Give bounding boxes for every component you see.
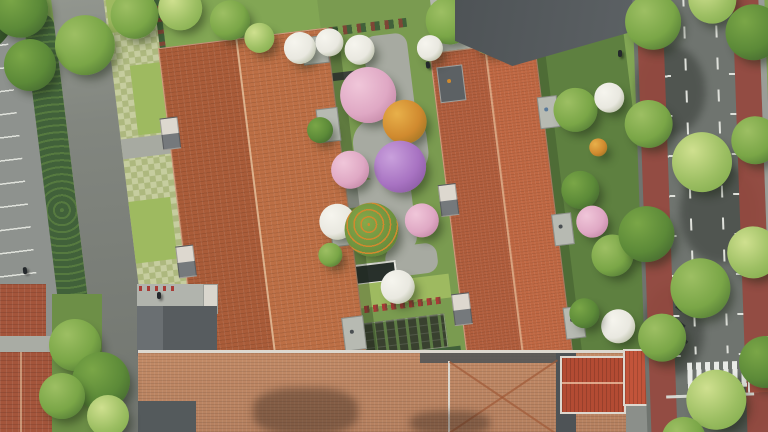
- terrace-furniture: [350, 330, 354, 334]
- terrace-furniture: [544, 107, 548, 111]
- west-balcony: [159, 116, 181, 150]
- tree-shadow-on-roof: [253, 388, 358, 432]
- green-tree: [87, 395, 129, 432]
- roof-cutout-terrace: [436, 64, 466, 103]
- terrace-furniture: [558, 224, 562, 228]
- pedestrian: [426, 61, 431, 68]
- annex-red-roof: [560, 356, 626, 414]
- west-balcony: [438, 183, 460, 217]
- tree-shadow-on-roof: [410, 411, 490, 432]
- lawn-patch: [128, 197, 177, 264]
- aerial-render: [0, 0, 768, 432]
- east-terrace: [551, 212, 575, 246]
- red-flower-border: [139, 286, 179, 291]
- flat-gray-building: [137, 284, 217, 356]
- green-tree: [39, 373, 85, 419]
- pedestrian: [23, 267, 28, 274]
- roof-ridge: [562, 382, 624, 384]
- east-terrace: [341, 315, 367, 351]
- street-tree: [669, 257, 731, 319]
- west-balcony: [451, 292, 473, 326]
- east-avenue: [632, 0, 768, 432]
- terrace-furniture: [447, 79, 451, 83]
- south-wing-building: [138, 350, 626, 432]
- dark-notch-roof: [138, 401, 196, 432]
- flat-roof-light-section: [137, 306, 163, 356]
- roof-ridge: [20, 352, 22, 432]
- pedestrian: [618, 50, 622, 57]
- west-balcony: [175, 244, 197, 278]
- neighbor-roof-north: [0, 284, 46, 338]
- pedestrian: [157, 292, 161, 299]
